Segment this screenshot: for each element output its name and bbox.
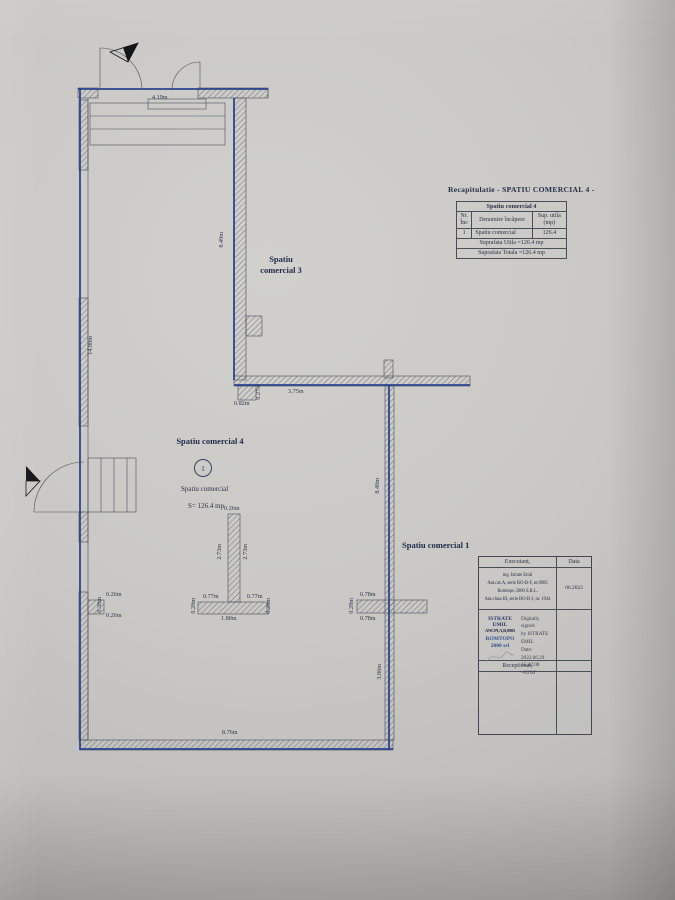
digital-stamp: ISTRATE EMIL ANCPI,A,B,0985 ROMTOPO 2000…: [481, 616, 519, 654]
receptionat-label: Receptionat,: [479, 661, 557, 671]
executant-line: Romtopo 2000 S.R.L.: [480, 588, 555, 596]
recap-title: Recapitulatie - SPATIU COMERCIAL 4 -: [448, 185, 578, 194]
executant-line: ing. Istrate Emil: [480, 572, 555, 580]
room4-name: Spatiu comercial: [181, 485, 228, 493]
dimension-label: 2.73m: [217, 544, 223, 560]
digital-signature-text: Digitally signed by ISTRATE EMIL Date: 2…: [519, 616, 554, 654]
dimension-label: 1.80m: [221, 616, 237, 622]
recap-table: Spatiu comercial 4 Nr. Înc Denumire încă…: [456, 201, 567, 259]
date-label: Data: [557, 557, 591, 567]
subtotal-row: Suprafata Utila =126.4 mp: [457, 238, 567, 248]
dimension-label: 0.78m: [360, 616, 376, 622]
floor-plan-drawing: [0, 0, 675, 900]
dimension-label: 8.48m: [375, 478, 381, 494]
recap-table-header: Spatiu comercial 4: [457, 202, 567, 212]
dimension-label: 8.76m: [222, 730, 238, 736]
signature-line: Digitally signed: [521, 616, 554, 632]
dimension-label: 0.28m: [266, 598, 272, 614]
total-row: Suprafata Totala =126.4 mp: [457, 248, 567, 258]
stamp-area: ISTRATE EMIL ANCPI,A,B,0985 ROMTOPO 2000…: [479, 610, 557, 660]
north-arrow: [110, 43, 138, 62]
photo-paper: Spatiu comercial 3 Spatiu comercial 4 1 …: [0, 0, 675, 900]
dimension-label: 0.26m: [106, 613, 122, 619]
room1-label: Spatiu comercial 1: [402, 540, 469, 551]
executant-label: Executant,: [479, 557, 557, 567]
room4-number-circle: 1: [194, 459, 212, 477]
col-suprafata: Sup. utila (mp): [532, 212, 566, 229]
room4-area: S= 126.4 mp: [188, 502, 224, 510]
dimension-label: 0.26m: [106, 592, 122, 598]
stamp-name: ISTRATE EMIL: [481, 616, 519, 628]
room4-title: Spatiu comercial 4: [165, 436, 255, 447]
empty-cell: [557, 672, 591, 734]
signature-line: by ISTRATE EMIL: [521, 631, 554, 647]
executant-line: Aut.clasa III, serie RO-B-J, nr. 1944: [480, 596, 555, 604]
dimension-label: 0.26m: [224, 506, 240, 512]
executant-line: Aut.cat.A, serie RO-B-F, nr.0985: [480, 580, 555, 588]
dimension-label: 0.38m: [97, 597, 103, 613]
date-value: 06.2022: [557, 568, 591, 609]
dimension-label: 4.19m: [152, 95, 168, 101]
stamp-company: ROMTOPO 2000 srl: [481, 636, 519, 650]
dimension-label: 3.75m: [288, 389, 304, 395]
dimension-label: 3.86m: [377, 664, 383, 680]
dimension-label: 0.82m: [234, 401, 250, 407]
room3-label: Spatiu comercial 3: [248, 254, 314, 277]
dimension-label: 0.77m: [203, 594, 219, 600]
cell-denumire: Spatiu comercial: [472, 229, 532, 239]
dimension-label: 14.88m: [88, 336, 94, 355]
dimension-label: 0.28m: [349, 598, 355, 614]
cell-suprafata: 126.4: [532, 229, 566, 239]
dimension-label: 0.78m: [360, 592, 376, 598]
dimension-label: 0.27m: [256, 384, 262, 400]
empty-cell: [479, 672, 557, 734]
dimension-label: 0.77m: [247, 594, 263, 600]
executant-details: ing. Istrate Emil Aut.cat.A, serie RO-B-…: [479, 568, 557, 609]
col-denumire: Denumire încăpere: [472, 212, 532, 229]
table-row: 1 Spatiu comercial 126.4: [457, 229, 567, 239]
receptionat-date-empty: [557, 661, 591, 671]
dimension-label: 2.73m: [243, 544, 249, 560]
stamp-date-empty: [557, 610, 591, 660]
stamp-id: ANCPI,A,B,0985: [481, 628, 519, 633]
title-block: Executant, Data ing. Istrate Emil Aut.ca…: [478, 556, 592, 735]
cell-nr: 1: [457, 229, 472, 239]
recap-block: Recapitulatie - SPATIU COMERCIAL 4 - Spa…: [448, 185, 578, 259]
col-nr: Nr. Înc: [457, 212, 472, 229]
dimension-label: 0.28m: [191, 598, 197, 614]
dimension-label: 8.49m: [219, 232, 225, 248]
